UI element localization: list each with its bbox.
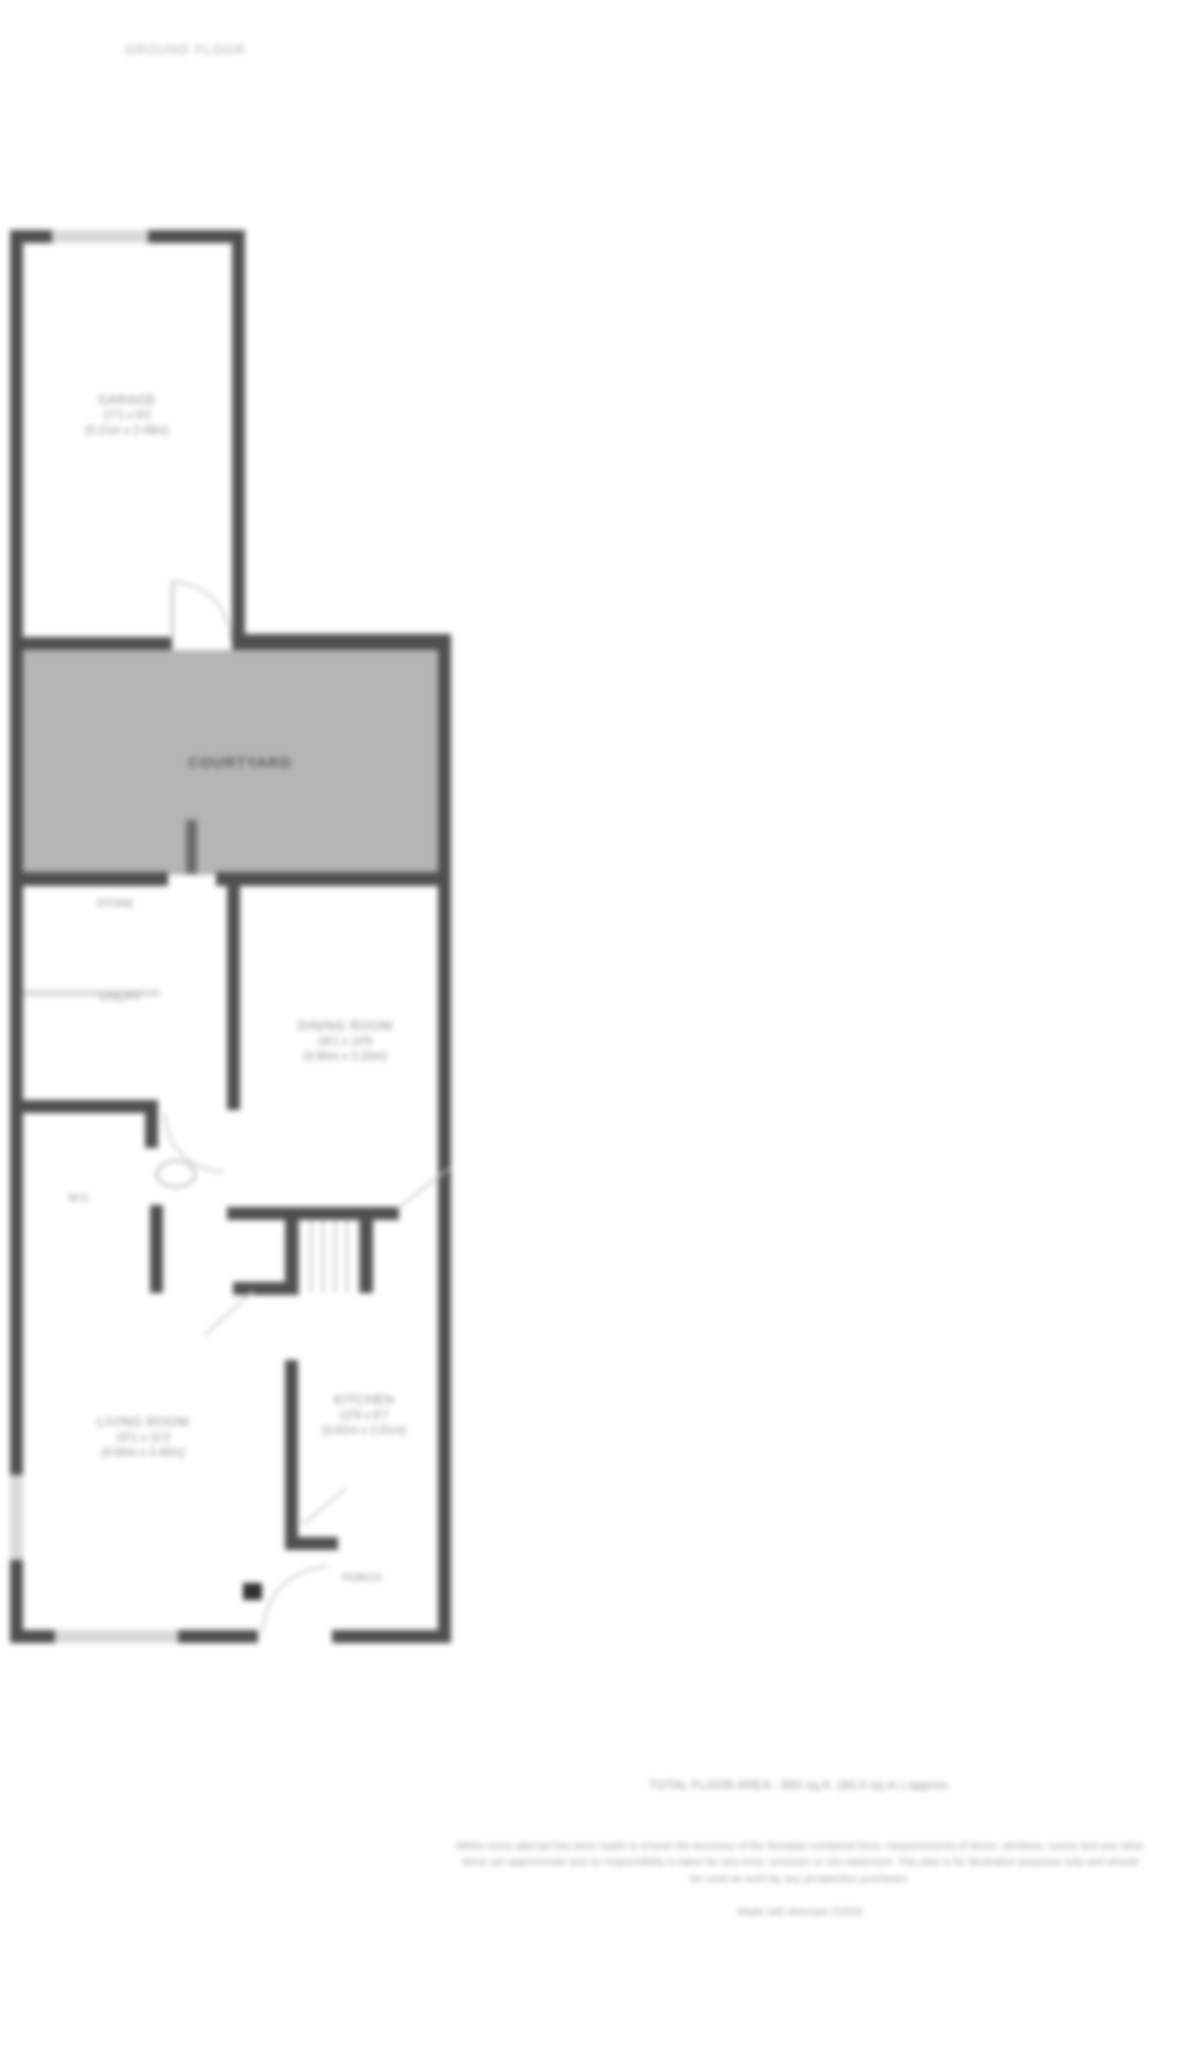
floor-title: GROUND FLOOR <box>125 42 246 57</box>
window <box>10 1475 23 1560</box>
wall <box>10 872 168 886</box>
total-area-text: TOTAL FLOOR AREA : 893 sq.ft. (83.0 sq.m… <box>455 1778 1145 1792</box>
wall <box>227 886 240 1110</box>
wall <box>232 230 245 648</box>
front-door-pillar <box>243 1583 262 1600</box>
wall <box>10 1630 55 1643</box>
wall <box>23 1100 158 1113</box>
wall <box>145 1100 158 1148</box>
wall <box>178 1630 258 1643</box>
room-dims-metric: (3.81m x 2.01m) <box>322 1424 406 1439</box>
door-arc <box>172 581 232 641</box>
room-label-wc: W.C. <box>68 1192 92 1204</box>
wall <box>438 634 451 875</box>
wall <box>216 872 451 886</box>
room-name: LIVING ROOM <box>97 1414 189 1431</box>
wall <box>10 230 23 650</box>
metropix-credit: Made with Metropix ©2023 <box>455 1906 1145 1918</box>
room-label-living: LIVING ROOM 15'1 x 11'2 (4.60m x 3.40m) <box>97 1414 189 1461</box>
wall <box>233 1282 299 1295</box>
wall <box>285 1360 298 1550</box>
wall <box>232 634 451 650</box>
disclaimer-text: Whilst every attempt has been made to en… <box>455 1838 1145 1887</box>
wall <box>227 1207 399 1220</box>
courtyard-label: COURTYARD <box>188 755 291 772</box>
door-leaf <box>186 820 197 874</box>
door-leaf <box>302 1487 348 1526</box>
room-dims-metric: (4.90m x 3.20m) <box>297 1050 392 1065</box>
room-dims-metric: (4.60m x 3.40m) <box>97 1446 189 1461</box>
room-dims-imperial: 17'1 x 8'2 <box>85 409 169 424</box>
room-dims-imperial: 12'6 x 6'7 <box>322 1409 406 1424</box>
room-name: KITCHEN <box>322 1392 406 1409</box>
door-leaf <box>204 1290 254 1336</box>
room-label-porch: PORCH <box>342 1572 382 1584</box>
door-leaf <box>171 581 174 639</box>
room-label-garage: GARAGE 17'1 x 8'2 (5.21m x 2.49m) <box>85 392 169 439</box>
room-label-dining: DINING ROOM 16'1 x 10'6 (4.90m x 3.20m) <box>297 1018 392 1065</box>
wall <box>360 1220 373 1293</box>
wall <box>438 886 451 1643</box>
wall <box>332 1630 451 1643</box>
room-label-utility: UTILITY <box>100 992 141 1004</box>
room-label-kitchen: KITCHEN 12'6 x 6'7 (3.81m x 2.01m) <box>322 1392 406 1439</box>
room-dims-imperial: 15'1 x 11'2 <box>97 1431 189 1446</box>
wall <box>298 1537 338 1550</box>
wall <box>150 1205 163 1293</box>
floorplan-page: GROUND FLOOR GARAGE 17'1 x 8'2 (5.21m x … <box>0 0 1184 2048</box>
door-arc <box>262 1566 328 1632</box>
wall <box>10 637 172 650</box>
wash-basin <box>156 1160 196 1188</box>
room-name: GARAGE <box>85 392 169 409</box>
stairs <box>298 1220 360 1293</box>
room-dims-imperial: 16'1 x 10'6 <box>297 1035 392 1050</box>
room-dims-metric: (5.21m x 2.49m) <box>85 424 169 439</box>
wall <box>10 650 23 875</box>
room-name: DINING ROOM <box>297 1018 392 1035</box>
room-label-store: STORE <box>96 898 134 910</box>
wall <box>148 230 245 243</box>
